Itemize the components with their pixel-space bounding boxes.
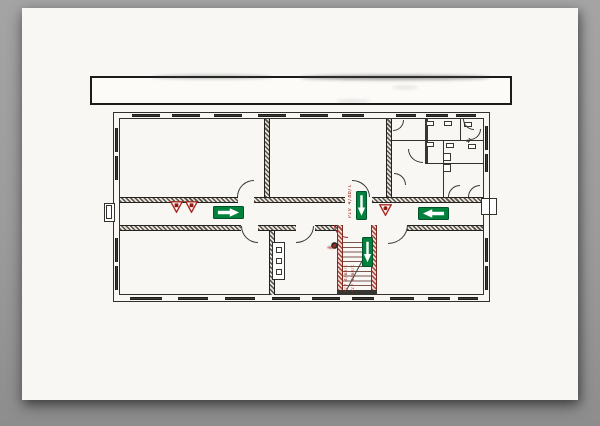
corridor-wall bbox=[120, 225, 241, 231]
toilet-fixture bbox=[446, 143, 454, 148]
window bbox=[428, 297, 450, 300]
corridor-wall bbox=[254, 197, 345, 203]
stair-base-wall bbox=[337, 290, 377, 295]
fire-extinguisher-icon bbox=[185, 198, 198, 210]
window bbox=[352, 297, 374, 300]
window bbox=[485, 266, 488, 290]
room-divider-wall bbox=[264, 119, 270, 197]
window bbox=[485, 126, 488, 150]
toilet-fixture bbox=[444, 121, 452, 126]
exit-arrow-down-icon bbox=[356, 191, 367, 220]
room-divider-wall bbox=[386, 119, 392, 197]
partition-wall bbox=[460, 119, 461, 140]
window bbox=[115, 128, 118, 152]
scan-smudge bbox=[152, 75, 272, 79]
corridor-west-door-leaf bbox=[106, 205, 112, 219]
fire-extinguisher-icon bbox=[379, 201, 392, 213]
exit-arrow-down-icon bbox=[362, 237, 373, 267]
fixture-box bbox=[443, 164, 451, 172]
window bbox=[225, 297, 255, 300]
corridor-wall bbox=[258, 225, 296, 231]
window bbox=[132, 114, 160, 117]
room-number-label: 4 bbox=[466, 138, 470, 145]
stair-code-label: PIV 4/BB/C bbox=[351, 244, 357, 292]
window bbox=[115, 238, 118, 262]
fire-extinguisher-icon bbox=[170, 198, 183, 210]
shaft-cell bbox=[276, 247, 282, 253]
window bbox=[390, 297, 414, 300]
window bbox=[172, 114, 200, 117]
window bbox=[458, 297, 478, 300]
scan-smudge bbox=[336, 100, 370, 102]
window bbox=[115, 156, 118, 180]
document-page: 4 PIV 4/BB/C PIV 4/BB/C PIV 4/BB/C bbox=[22, 8, 578, 400]
window bbox=[485, 238, 488, 262]
window bbox=[178, 297, 208, 300]
partition-wall bbox=[425, 163, 483, 164]
window bbox=[115, 266, 118, 290]
corridor-wall bbox=[407, 225, 483, 231]
window bbox=[485, 154, 488, 172]
window bbox=[456, 114, 476, 117]
corridor-east-door-leaf bbox=[489, 199, 490, 214]
window bbox=[258, 114, 286, 117]
scan-smudge bbox=[300, 75, 490, 80]
window bbox=[342, 114, 364, 117]
exit-arrow-left-icon bbox=[418, 207, 449, 220]
window bbox=[214, 114, 242, 117]
corridor-code-label: PIV 4/BB/C bbox=[348, 166, 356, 218]
fixture-box bbox=[443, 153, 451, 161]
shaft-cell bbox=[276, 269, 282, 275]
toilet-fixture bbox=[426, 121, 434, 126]
window bbox=[130, 297, 162, 300]
window bbox=[396, 114, 416, 117]
exit-arrow-right-icon bbox=[213, 206, 244, 219]
window bbox=[312, 297, 340, 300]
scan-smudge bbox=[392, 86, 418, 89]
fire-point-icon bbox=[330, 235, 339, 244]
shaft-cell bbox=[276, 258, 282, 264]
window bbox=[272, 297, 300, 300]
stair-code-label: PIV 4/BB/C bbox=[344, 244, 350, 292]
desk-background: 4 PIV 4/BB/C PIV 4/BB/C PIV 4/BB/C bbox=[0, 0, 600, 426]
window bbox=[426, 114, 448, 117]
title-box bbox=[90, 76, 512, 105]
toilet-fixture bbox=[426, 142, 434, 147]
small-red-mark bbox=[327, 246, 335, 249]
window bbox=[300, 114, 328, 117]
